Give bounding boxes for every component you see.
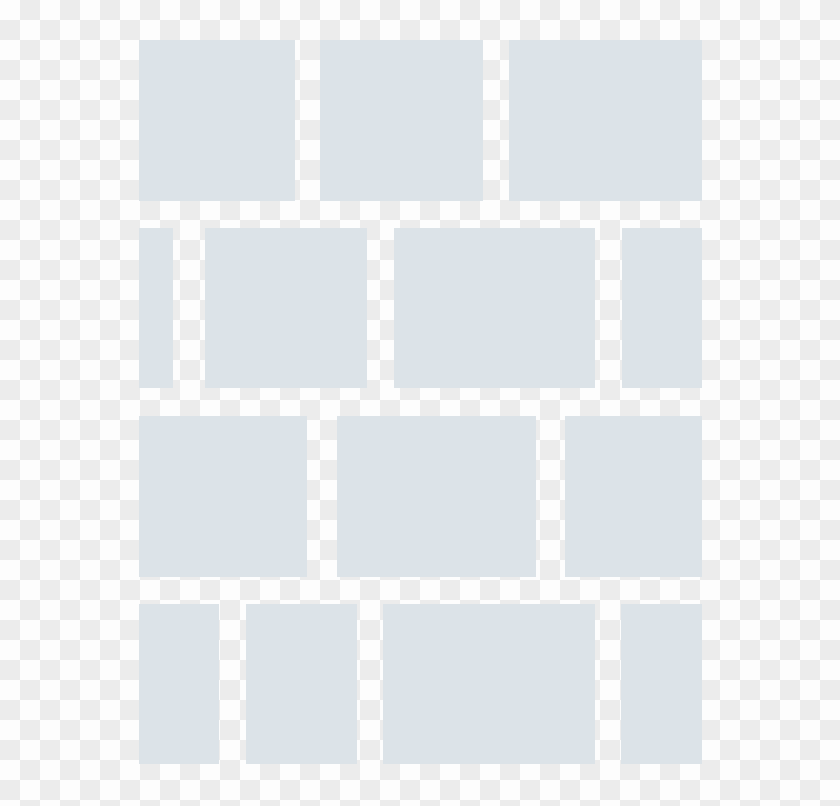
brick-row1-3	[509, 40, 702, 201]
brick-row3-2	[337, 416, 536, 577]
brick-row4-2	[246, 604, 357, 764]
brick-row2-2	[205, 228, 367, 388]
brick-row2-4	[622, 228, 702, 388]
brick-row1-2	[320, 40, 483, 201]
brick-row3-1	[139, 416, 307, 577]
brick-row3-3	[565, 416, 702, 577]
brick-row4-4	[621, 604, 702, 764]
brick-row1-1	[139, 40, 295, 201]
brick-row4-1	[139, 604, 219, 764]
transparency-checkerboard-background	[0, 0, 840, 806]
brick-row2-1	[139, 228, 173, 388]
brick-wall-icon	[0, 0, 840, 806]
brick-row4-3	[383, 604, 595, 764]
brick-row2-3	[394, 228, 595, 388]
